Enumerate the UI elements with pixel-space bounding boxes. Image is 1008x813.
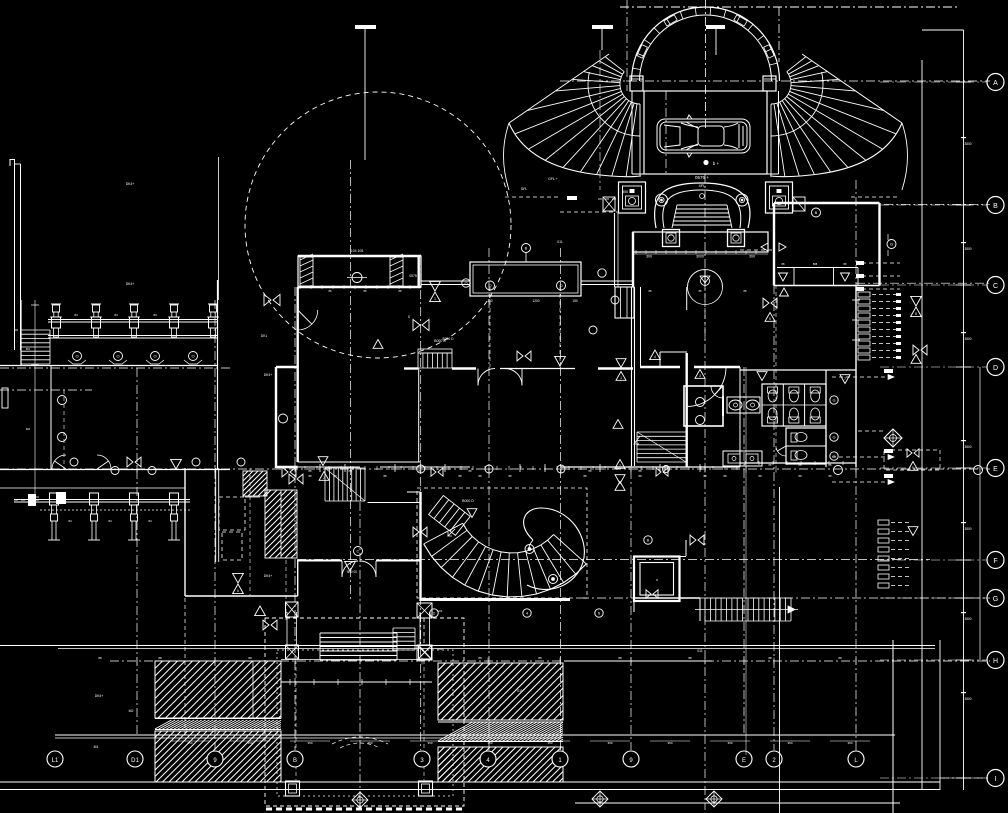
svg-text:011: 011 bbox=[517, 689, 523, 693]
svg-text:DK1: DK1 bbox=[261, 334, 267, 338]
svg-text:3500: 3500 bbox=[964, 617, 971, 621]
svg-text:350: 350 bbox=[727, 741, 732, 745]
svg-text:3000: 3000 bbox=[696, 255, 704, 259]
svg-text:7: 7 bbox=[844, 377, 846, 381]
svg-text:M2: M2 bbox=[129, 709, 134, 713]
svg-text:88: 88 bbox=[798, 474, 802, 478]
svg-text:I: I bbox=[995, 776, 997, 783]
svg-text:300: 300 bbox=[749, 255, 755, 259]
svg-text:9: 9 bbox=[912, 466, 914, 470]
svg-text:1200: 1200 bbox=[532, 299, 539, 303]
svg-text:5: 5 bbox=[769, 317, 771, 321]
svg-text:84: 84 bbox=[74, 313, 78, 317]
svg-text:M2: M2 bbox=[26, 427, 30, 431]
svg-text:6: 6 bbox=[237, 589, 239, 593]
svg-text:GFL: GFL bbox=[521, 187, 528, 191]
svg-text:011: 011 bbox=[697, 649, 703, 653]
svg-text:84: 84 bbox=[153, 313, 157, 317]
svg-text:D: D bbox=[993, 365, 998, 372]
svg-text:3500: 3500 bbox=[964, 142, 971, 146]
svg-text:G: G bbox=[832, 454, 835, 459]
svg-text:0575 +: 0575 + bbox=[695, 175, 709, 180]
svg-text:88: 88 bbox=[383, 474, 387, 478]
svg-text:88: 88 bbox=[828, 474, 832, 478]
svg-text:350: 350 bbox=[427, 741, 432, 745]
svg-text:B: B bbox=[647, 538, 650, 543]
svg-text:300: 300 bbox=[646, 255, 652, 259]
svg-text:b +: b + bbox=[713, 161, 720, 166]
svg-text:E: E bbox=[993, 466, 998, 473]
svg-text:M1: M1 bbox=[94, 745, 99, 749]
svg-text:88: 88 bbox=[703, 474, 707, 478]
svg-text:S: S bbox=[408, 315, 410, 319]
svg-text:88: 88 bbox=[723, 474, 727, 478]
svg-text:84: 84 bbox=[108, 519, 112, 523]
svg-text:DK4+: DK4+ bbox=[264, 574, 273, 578]
svg-text:350: 350 bbox=[787, 741, 792, 745]
svg-text:3500: 3500 bbox=[964, 697, 971, 701]
svg-text:M1: M1 bbox=[26, 347, 30, 351]
svg-text:O: O bbox=[191, 354, 194, 359]
svg-text:3: 3 bbox=[699, 374, 701, 378]
svg-text:88: 88 bbox=[478, 474, 482, 478]
svg-text:84: 84 bbox=[114, 313, 118, 317]
svg-text:88: 88 bbox=[508, 474, 512, 478]
svg-text:88: 88 bbox=[618, 656, 622, 660]
svg-text:350: 350 bbox=[187, 741, 192, 745]
svg-text:B000 D: B000 D bbox=[443, 337, 455, 341]
svg-text:88: 88 bbox=[98, 656, 102, 660]
svg-text:888: 888 bbox=[813, 262, 818, 266]
svg-text:C: C bbox=[993, 283, 998, 290]
svg-text:O: O bbox=[75, 354, 78, 359]
svg-text:G: G bbox=[832, 435, 835, 440]
svg-text:3500: 3500 bbox=[964, 445, 971, 449]
svg-text:350: 350 bbox=[367, 741, 372, 745]
svg-text:350: 350 bbox=[247, 741, 252, 745]
svg-text:D1: D1 bbox=[131, 758, 139, 764]
svg-text:DK4+: DK4+ bbox=[126, 182, 135, 186]
svg-text:G: G bbox=[832, 398, 835, 403]
svg-text:B00 00: B00 00 bbox=[347, 570, 357, 574]
svg-text:3500: 3500 bbox=[964, 527, 971, 531]
svg-text:88: 88 bbox=[538, 656, 542, 660]
svg-text:4: 4 bbox=[654, 355, 656, 359]
svg-text:350: 350 bbox=[607, 741, 612, 745]
svg-text:88: 88 bbox=[688, 656, 692, 660]
svg-text:B000 D: B000 D bbox=[462, 499, 474, 503]
svg-text:350: 350 bbox=[487, 741, 492, 745]
svg-text:G: G bbox=[890, 242, 893, 247]
svg-text:B: B bbox=[815, 210, 818, 215]
svg-text:H: H bbox=[993, 658, 998, 665]
svg-text:2: 2 bbox=[619, 464, 621, 468]
svg-text:B: B bbox=[993, 203, 998, 210]
svg-text:88: 88 bbox=[768, 656, 772, 660]
svg-text:B50: B50 bbox=[622, 190, 628, 194]
svg-text:A: A bbox=[993, 80, 998, 87]
svg-text:84: 84 bbox=[148, 519, 152, 523]
svg-text:B: B bbox=[525, 246, 528, 251]
svg-text:88: 88 bbox=[638, 474, 642, 478]
svg-text:88: 88 bbox=[333, 474, 337, 478]
svg-text:B: B bbox=[293, 758, 297, 764]
svg-text:350: 350 bbox=[667, 741, 672, 745]
svg-text:350: 350 bbox=[307, 741, 312, 745]
svg-text:88: 88 bbox=[478, 656, 482, 660]
svg-text:F: F bbox=[993, 558, 997, 565]
svg-text:8: 8 bbox=[915, 312, 917, 316]
svg-text:GFL +: GFL + bbox=[548, 177, 557, 181]
svg-text:150: 150 bbox=[572, 299, 578, 303]
svg-text:1: 1 bbox=[620, 376, 622, 380]
svg-text:O: O bbox=[116, 354, 119, 359]
svg-text:DK4+: DK4+ bbox=[126, 282, 135, 286]
svg-text:104 105: 104 105 bbox=[351, 249, 364, 253]
svg-text:88: 88 bbox=[838, 656, 842, 660]
svg-text:350: 350 bbox=[547, 741, 552, 745]
svg-text:1: 1 bbox=[434, 297, 436, 301]
svg-text:3500: 3500 bbox=[964, 337, 971, 341]
svg-text:G: G bbox=[993, 596, 998, 603]
svg-text:3500: 3500 bbox=[964, 247, 971, 251]
svg-text:b02: b02 bbox=[437, 647, 442, 651]
svg-text:E: E bbox=[742, 758, 746, 764]
svg-text:350: 350 bbox=[847, 741, 852, 745]
svg-text:0575: 0575 bbox=[409, 274, 417, 278]
svg-text:88: 88 bbox=[458, 474, 462, 478]
svg-text:L1: L1 bbox=[52, 758, 59, 764]
svg-text:88: 88 bbox=[758, 474, 762, 478]
svg-text:DK4+: DK4+ bbox=[264, 373, 273, 377]
svg-text:O: O bbox=[153, 354, 156, 359]
svg-text:DK4+: DK4+ bbox=[95, 694, 104, 698]
svg-text:88: 88 bbox=[158, 656, 162, 660]
svg-text:88: 88 bbox=[583, 474, 587, 478]
svg-text:v: v bbox=[656, 577, 658, 582]
svg-text:011: 011 bbox=[557, 240, 563, 244]
svg-text:O: O bbox=[464, 281, 467, 286]
svg-text:88: 88 bbox=[308, 474, 312, 478]
svg-text:88: 88 bbox=[248, 656, 252, 660]
svg-text:84: 84 bbox=[68, 519, 72, 523]
svg-text:C: C bbox=[357, 549, 360, 554]
